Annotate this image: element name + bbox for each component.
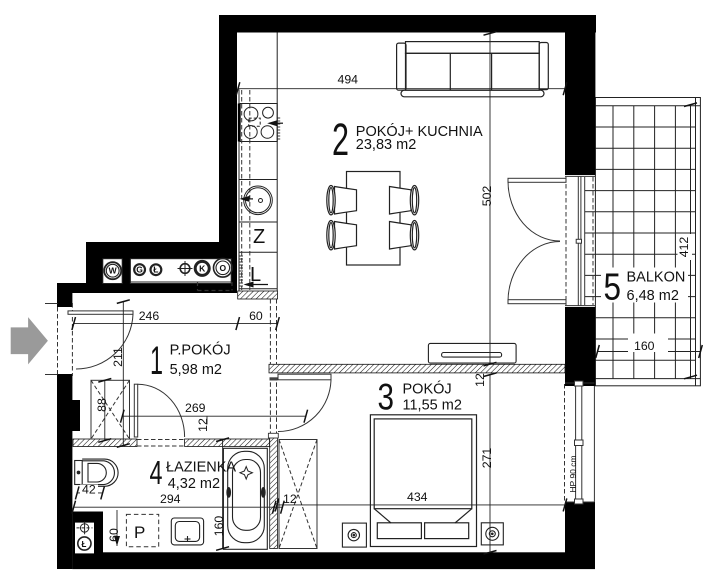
svg-text:5: 5 bbox=[604, 267, 622, 309]
svg-text:412: 412 bbox=[677, 237, 691, 258]
svg-text:246: 246 bbox=[139, 309, 160, 323]
svg-text:W: W bbox=[109, 266, 118, 276]
svg-text:P.POKÓJ: P.POKÓJ bbox=[170, 341, 231, 358]
svg-text:211: 211 bbox=[111, 347, 125, 367]
svg-text:1: 1 bbox=[150, 339, 163, 383]
svg-text:POKÓJ: POKÓJ bbox=[403, 381, 452, 398]
svg-text:160: 160 bbox=[634, 339, 655, 353]
svg-text:160: 160 bbox=[212, 516, 226, 537]
svg-text:434: 434 bbox=[407, 490, 428, 504]
svg-text:6,48 m2: 6,48 m2 bbox=[627, 288, 679, 304]
svg-text:23,83 m2: 23,83 m2 bbox=[356, 137, 416, 153]
svg-text:269: 269 bbox=[185, 401, 206, 415]
svg-text:5,98 m2: 5,98 m2 bbox=[170, 362, 222, 378]
svg-text:Ł: Ł bbox=[82, 540, 87, 549]
svg-text:Ł: Ł bbox=[153, 265, 158, 275]
svg-text:12: 12 bbox=[283, 492, 297, 506]
svg-text:Z: Z bbox=[253, 226, 265, 248]
svg-text:88: 88 bbox=[95, 398, 109, 412]
svg-text:502: 502 bbox=[480, 186, 494, 207]
svg-text:271: 271 bbox=[480, 448, 494, 469]
svg-text:2: 2 bbox=[332, 114, 349, 165]
svg-text:11,55 m2: 11,55 m2 bbox=[403, 398, 462, 414]
svg-text:12: 12 bbox=[473, 373, 487, 387]
svg-text:12: 12 bbox=[196, 418, 210, 432]
svg-text:294: 294 bbox=[160, 492, 181, 506]
svg-text:4: 4 bbox=[150, 454, 163, 491]
svg-text:3: 3 bbox=[378, 377, 395, 418]
svg-text:42: 42 bbox=[82, 483, 96, 497]
svg-text:G: G bbox=[136, 265, 143, 275]
svg-text:60: 60 bbox=[107, 528, 121, 542]
svg-text:60: 60 bbox=[249, 309, 263, 323]
svg-text:494: 494 bbox=[338, 73, 359, 87]
svg-text:ŁAZIENKA: ŁAZIENKA bbox=[166, 460, 236, 476]
svg-text:4,32 m2: 4,32 m2 bbox=[168, 476, 220, 492]
svg-text:O: O bbox=[219, 263, 226, 273]
svg-text:HP 90 cm: HP 90 cm bbox=[568, 455, 578, 492]
svg-text:BALKON: BALKON bbox=[627, 270, 686, 286]
svg-text:P: P bbox=[134, 523, 145, 542]
svg-text:K: K bbox=[199, 264, 206, 274]
